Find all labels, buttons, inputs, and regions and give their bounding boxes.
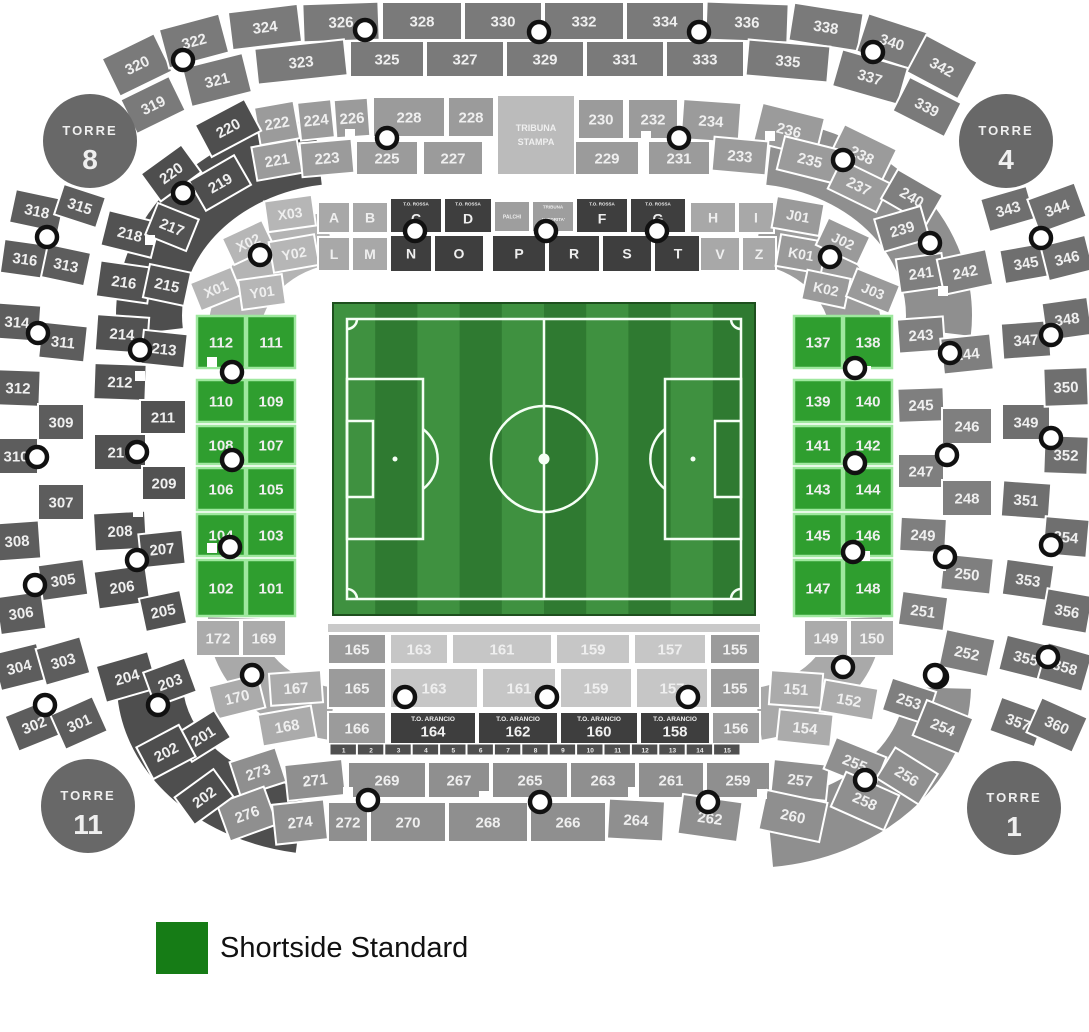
- legend: Shortside Standard: [156, 922, 468, 974]
- row-number-cell: 8: [522, 744, 548, 755]
- section-105[interactable]: 105: [247, 468, 295, 510]
- section-351[interactable]: 351: [1001, 480, 1051, 519]
- section-r[interactable]: R: [548, 235, 600, 272]
- legend-swatch: [156, 922, 208, 974]
- row-number-cell: 10: [577, 744, 603, 755]
- section-344[interactable]: 344: [1027, 183, 1086, 234]
- gate-marker[interactable]: [537, 687, 557, 707]
- gate-marker[interactable]: [1041, 535, 1061, 555]
- section-155[interactable]: 155: [710, 634, 760, 664]
- row-number-cell: 3: [385, 744, 411, 755]
- gate-marker[interactable]: [647, 221, 667, 241]
- gate-marker[interactable]: [833, 657, 853, 677]
- section-v[interactable]: V: [700, 237, 740, 271]
- section-230[interactable]: 230: [578, 99, 624, 139]
- section-263[interactable]: 263: [570, 762, 636, 798]
- gate-marker[interactable]: [173, 50, 193, 70]
- gate-marker[interactable]: [855, 770, 875, 790]
- section-z[interactable]: Z: [742, 237, 776, 271]
- section-336[interactable]: 336: [705, 2, 788, 43]
- gate-marker[interactable]: [698, 792, 718, 812]
- gate-marker[interactable]: [222, 362, 242, 382]
- section-164[interactable]: T.O. ARANCIO164: [390, 712, 476, 744]
- section-163[interactable]: 163: [390, 634, 448, 664]
- section-306[interactable]: 306: [0, 591, 46, 635]
- gate-marker[interactable]: [529, 22, 549, 42]
- section-i[interactable]: I: [738, 202, 774, 233]
- section-162[interactable]: T.O. ARANCIO162: [478, 712, 558, 744]
- section-309[interactable]: 309: [38, 404, 84, 440]
- section-331[interactable]: 331: [586, 41, 664, 77]
- section-106[interactable]: 106: [197, 468, 245, 510]
- section-102[interactable]: 102: [197, 560, 245, 616]
- section-327[interactable]: 327: [426, 41, 504, 77]
- section-246[interactable]: 246: [942, 408, 992, 444]
- gate-marker[interactable]: [405, 221, 425, 241]
- gate-marker[interactable]: [127, 442, 147, 462]
- section-167[interactable]: 167: [269, 670, 323, 706]
- section-109[interactable]: 109: [247, 380, 295, 422]
- section-270[interactable]: 270: [370, 802, 446, 842]
- section-h[interactable]: H: [690, 202, 736, 233]
- section-143[interactable]: 143: [794, 468, 842, 510]
- gate-marker[interactable]: [1038, 647, 1058, 667]
- section-165[interactable]: 165: [328, 668, 386, 708]
- section-268[interactable]: 268: [448, 802, 528, 842]
- section-notch: [145, 235, 155, 245]
- section-160[interactable]: T.O. ARANCIO160: [560, 712, 638, 744]
- section-139[interactable]: 139: [794, 380, 842, 422]
- section-140[interactable]: 140: [844, 380, 892, 422]
- gate-marker[interactable]: [27, 447, 47, 467]
- section-261[interactable]: 261: [638, 762, 704, 798]
- section-notch: [207, 543, 217, 553]
- row-number-cell: 15: [714, 744, 740, 755]
- section-148[interactable]: 148: [844, 560, 892, 616]
- section-103[interactable]: 103: [247, 514, 295, 556]
- section-137[interactable]: 137: [794, 316, 842, 368]
- legend-label: Shortside Standard: [220, 932, 468, 965]
- section-350[interactable]: 350: [1043, 367, 1088, 407]
- section-274[interactable]: 274: [272, 799, 328, 844]
- section-159[interactable]: 159: [560, 668, 632, 708]
- gate-marker[interactable]: [863, 42, 883, 62]
- section-notch: [343, 787, 353, 797]
- row-number-cell: 11: [604, 744, 630, 755]
- section-252[interactable]: 252: [939, 629, 996, 677]
- section-f[interactable]: T.O. ROSSAF: [576, 198, 628, 233]
- gate-marker[interactable]: [130, 340, 150, 360]
- gate-marker[interactable]: [222, 450, 242, 470]
- section-312[interactable]: 312: [0, 369, 41, 407]
- section-325[interactable]: 325: [350, 41, 424, 77]
- row-number-cell: 9: [549, 744, 575, 755]
- gate-marker[interactable]: [536, 221, 556, 241]
- section-notch: [135, 371, 145, 381]
- section-264[interactable]: 264: [607, 799, 665, 842]
- section-y02[interactable]: Y02: [269, 234, 320, 273]
- section-308[interactable]: 308: [0, 520, 41, 561]
- row-number-cell: 5: [440, 744, 466, 755]
- section-b[interactable]: B: [352, 202, 388, 233]
- section-324[interactable]: 324: [228, 4, 302, 50]
- section-151[interactable]: 151: [769, 670, 823, 708]
- seating-map: 3203223243263283303323343363383403423193…: [0, 0, 1089, 1032]
- row-number-cell: 14: [686, 744, 712, 755]
- section-notch: [641, 131, 651, 141]
- gate-marker[interactable]: [669, 128, 689, 148]
- section-212[interactable]: 212: [93, 363, 146, 401]
- row-number-cell: 6: [467, 744, 493, 755]
- gate-marker[interactable]: [689, 22, 709, 42]
- gate-marker[interactable]: [355, 20, 375, 40]
- section-158[interactable]: T.O. ARANCIO158: [640, 712, 710, 744]
- section-233[interactable]: 233: [712, 137, 769, 176]
- section-251[interactable]: 251: [898, 591, 948, 631]
- section-notch: [765, 131, 775, 141]
- section-111[interactable]: 111: [247, 316, 295, 368]
- section-107[interactable]: 107: [247, 426, 295, 464]
- section-215[interactable]: 215: [143, 264, 191, 306]
- gate-marker[interactable]: [377, 128, 397, 148]
- section-229[interactable]: 229: [575, 141, 639, 175]
- gate-marker[interactable]: [678, 687, 698, 707]
- section-165[interactable]: 165: [328, 634, 386, 664]
- gate-marker[interactable]: [920, 233, 940, 253]
- section-169[interactable]: 169: [242, 620, 286, 656]
- section-o[interactable]: O: [434, 235, 484, 272]
- section-notch: [938, 286, 948, 296]
- section-228[interactable]: 228: [448, 97, 494, 137]
- row-number-cell: 12: [631, 744, 657, 755]
- section-335[interactable]: 335: [746, 39, 831, 82]
- gate-marker[interactable]: [37, 227, 57, 247]
- section-145[interactable]: 145: [794, 514, 842, 556]
- section-157[interactable]: 157: [634, 634, 706, 664]
- section-notch: [757, 789, 767, 799]
- section-211[interactable]: 211: [140, 400, 186, 434]
- section-329[interactable]: 329: [506, 41, 584, 77]
- section-332[interactable]: 332: [544, 2, 624, 40]
- section-a[interactable]: A: [318, 202, 350, 233]
- section-307[interactable]: 307: [38, 484, 84, 520]
- row-number-cell: 13: [659, 744, 685, 755]
- gate-marker[interactable]: [843, 542, 863, 562]
- section-155[interactable]: 155: [710, 668, 760, 708]
- gate-marker[interactable]: [35, 695, 55, 715]
- section-notch: [345, 129, 355, 139]
- torre-11: TORRE11: [41, 759, 135, 853]
- section-328[interactable]: 328: [382, 2, 462, 40]
- section-110[interactable]: 110: [197, 380, 245, 422]
- section-150[interactable]: 150: [850, 620, 894, 656]
- section-243[interactable]: 243: [897, 316, 945, 353]
- section-m[interactable]: M: [352, 237, 388, 271]
- section-265[interactable]: 265: [492, 762, 568, 798]
- gate-marker[interactable]: [395, 687, 415, 707]
- gate-marker[interactable]: [833, 150, 853, 170]
- gate-marker[interactable]: [1031, 228, 1051, 248]
- gate-marker[interactable]: [148, 695, 168, 715]
- section-x03[interactable]: X03: [264, 195, 316, 232]
- section-209[interactable]: 209: [142, 466, 186, 500]
- football-pitch: [333, 303, 756, 615]
- section-248[interactable]: 248: [942, 480, 992, 516]
- section-301[interactable]: 301: [50, 696, 107, 749]
- gate-marker[interactable]: [28, 323, 48, 343]
- section-205[interactable]: 205: [139, 590, 187, 632]
- gate-marker[interactable]: [820, 247, 840, 267]
- section-y01[interactable]: Y01: [238, 274, 286, 310]
- gate-marker[interactable]: [127, 550, 147, 570]
- section-notch: [207, 357, 217, 367]
- section-154[interactable]: 154: [776, 709, 833, 746]
- section-notch: [479, 791, 489, 801]
- section-356[interactable]: 356: [1041, 588, 1089, 633]
- section-l[interactable]: L: [318, 237, 350, 271]
- torre-8: TORRE8: [43, 94, 137, 188]
- gate-marker[interactable]: [358, 790, 378, 810]
- section-j01[interactable]: J01: [772, 196, 825, 236]
- section-161[interactable]: 161: [452, 634, 552, 664]
- gate-marker[interactable]: [1041, 325, 1061, 345]
- gate-marker[interactable]: [937, 445, 957, 465]
- gate-marker[interactable]: [250, 245, 270, 265]
- section-245[interactable]: 245: [897, 387, 944, 423]
- gate-marker[interactable]: [173, 183, 193, 203]
- torre-4: TORRE4: [959, 94, 1053, 188]
- gate-marker[interactable]: [242, 665, 262, 685]
- gate-marker[interactable]: [530, 792, 550, 812]
- section-156[interactable]: 156: [712, 712, 760, 744]
- section-notch: [133, 507, 143, 517]
- section-227[interactable]: 227: [423, 141, 483, 175]
- section-223[interactable]: 223: [300, 139, 355, 177]
- section-stampa[interactable]: TRIBUNASTAMPA: [497, 95, 575, 175]
- section-315[interactable]: 315: [54, 184, 106, 228]
- section-d[interactable]: T.O. ROSSAD: [444, 198, 492, 233]
- section-333[interactable]: 333: [666, 41, 744, 77]
- row-number-cell: 1: [330, 744, 356, 755]
- section-s[interactable]: S: [602, 235, 652, 272]
- gate-marker[interactable]: [220, 537, 240, 557]
- section-303[interactable]: 303: [36, 636, 91, 685]
- gate-marker[interactable]: [25, 575, 45, 595]
- gate-marker[interactable]: [1041, 428, 1061, 448]
- section-221[interactable]: 221: [251, 139, 302, 180]
- gate-marker[interactable]: [845, 453, 865, 473]
- section-101[interactable]: 101: [247, 560, 295, 616]
- gate-marker[interactable]: [845, 358, 865, 378]
- walkway-band: [328, 624, 760, 632]
- section-343[interactable]: 343: [980, 186, 1036, 232]
- row-number-cell: 7: [494, 744, 520, 755]
- section-palchi[interactable]: PALCHI: [494, 201, 530, 232]
- section-147[interactable]: 147: [794, 560, 842, 616]
- row-number-cell: 2: [357, 744, 383, 755]
- section-159[interactable]: 159: [556, 634, 630, 664]
- section-p[interactable]: P: [492, 235, 546, 272]
- section-notch: [628, 787, 638, 797]
- section-224[interactable]: 224: [297, 99, 335, 140]
- section-313[interactable]: 313: [41, 244, 91, 286]
- section-112[interactable]: 112: [197, 316, 245, 368]
- gate-marker[interactable]: [935, 547, 955, 567]
- section-149[interactable]: 149: [804, 620, 848, 656]
- section-166[interactable]: 166: [328, 712, 386, 744]
- stadium-map: 3203223243263283303323343363383403423193…: [0, 0, 1089, 880]
- section-172[interactable]: 172: [196, 620, 240, 656]
- section-222[interactable]: 222: [254, 101, 300, 145]
- section-271[interactable]: 271: [284, 759, 345, 801]
- row-number-cell: 4: [412, 744, 438, 755]
- gate-marker[interactable]: [925, 665, 945, 685]
- section-141[interactable]: 141: [794, 426, 842, 464]
- gate-marker[interactable]: [940, 343, 960, 363]
- torre-1: TORRE1: [967, 761, 1061, 855]
